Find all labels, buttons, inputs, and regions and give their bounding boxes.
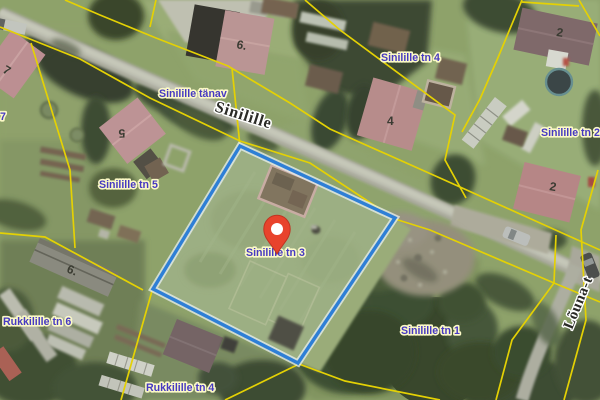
svg-text:Sinilille tn 1: Sinilille tn 1 <box>401 325 460 337</box>
svg-text:7: 7 <box>0 111 6 123</box>
svg-text:Rukkilille tn 6: Rukkilille tn 6 <box>3 316 71 328</box>
svg-text:Sinilille tn 2: Sinilille tn 2 <box>541 127 600 139</box>
svg-text:Sinilille tn 4: Sinilille tn 4 <box>381 52 440 64</box>
svg-text:Rukkilille tn 4: Rukkilille tn 4 <box>146 382 214 394</box>
svg-text:Sinilille tn 5: Sinilille tn 5 <box>99 179 158 191</box>
svg-text:Sinilille tänav: Sinilille tänav <box>159 88 227 100</box>
